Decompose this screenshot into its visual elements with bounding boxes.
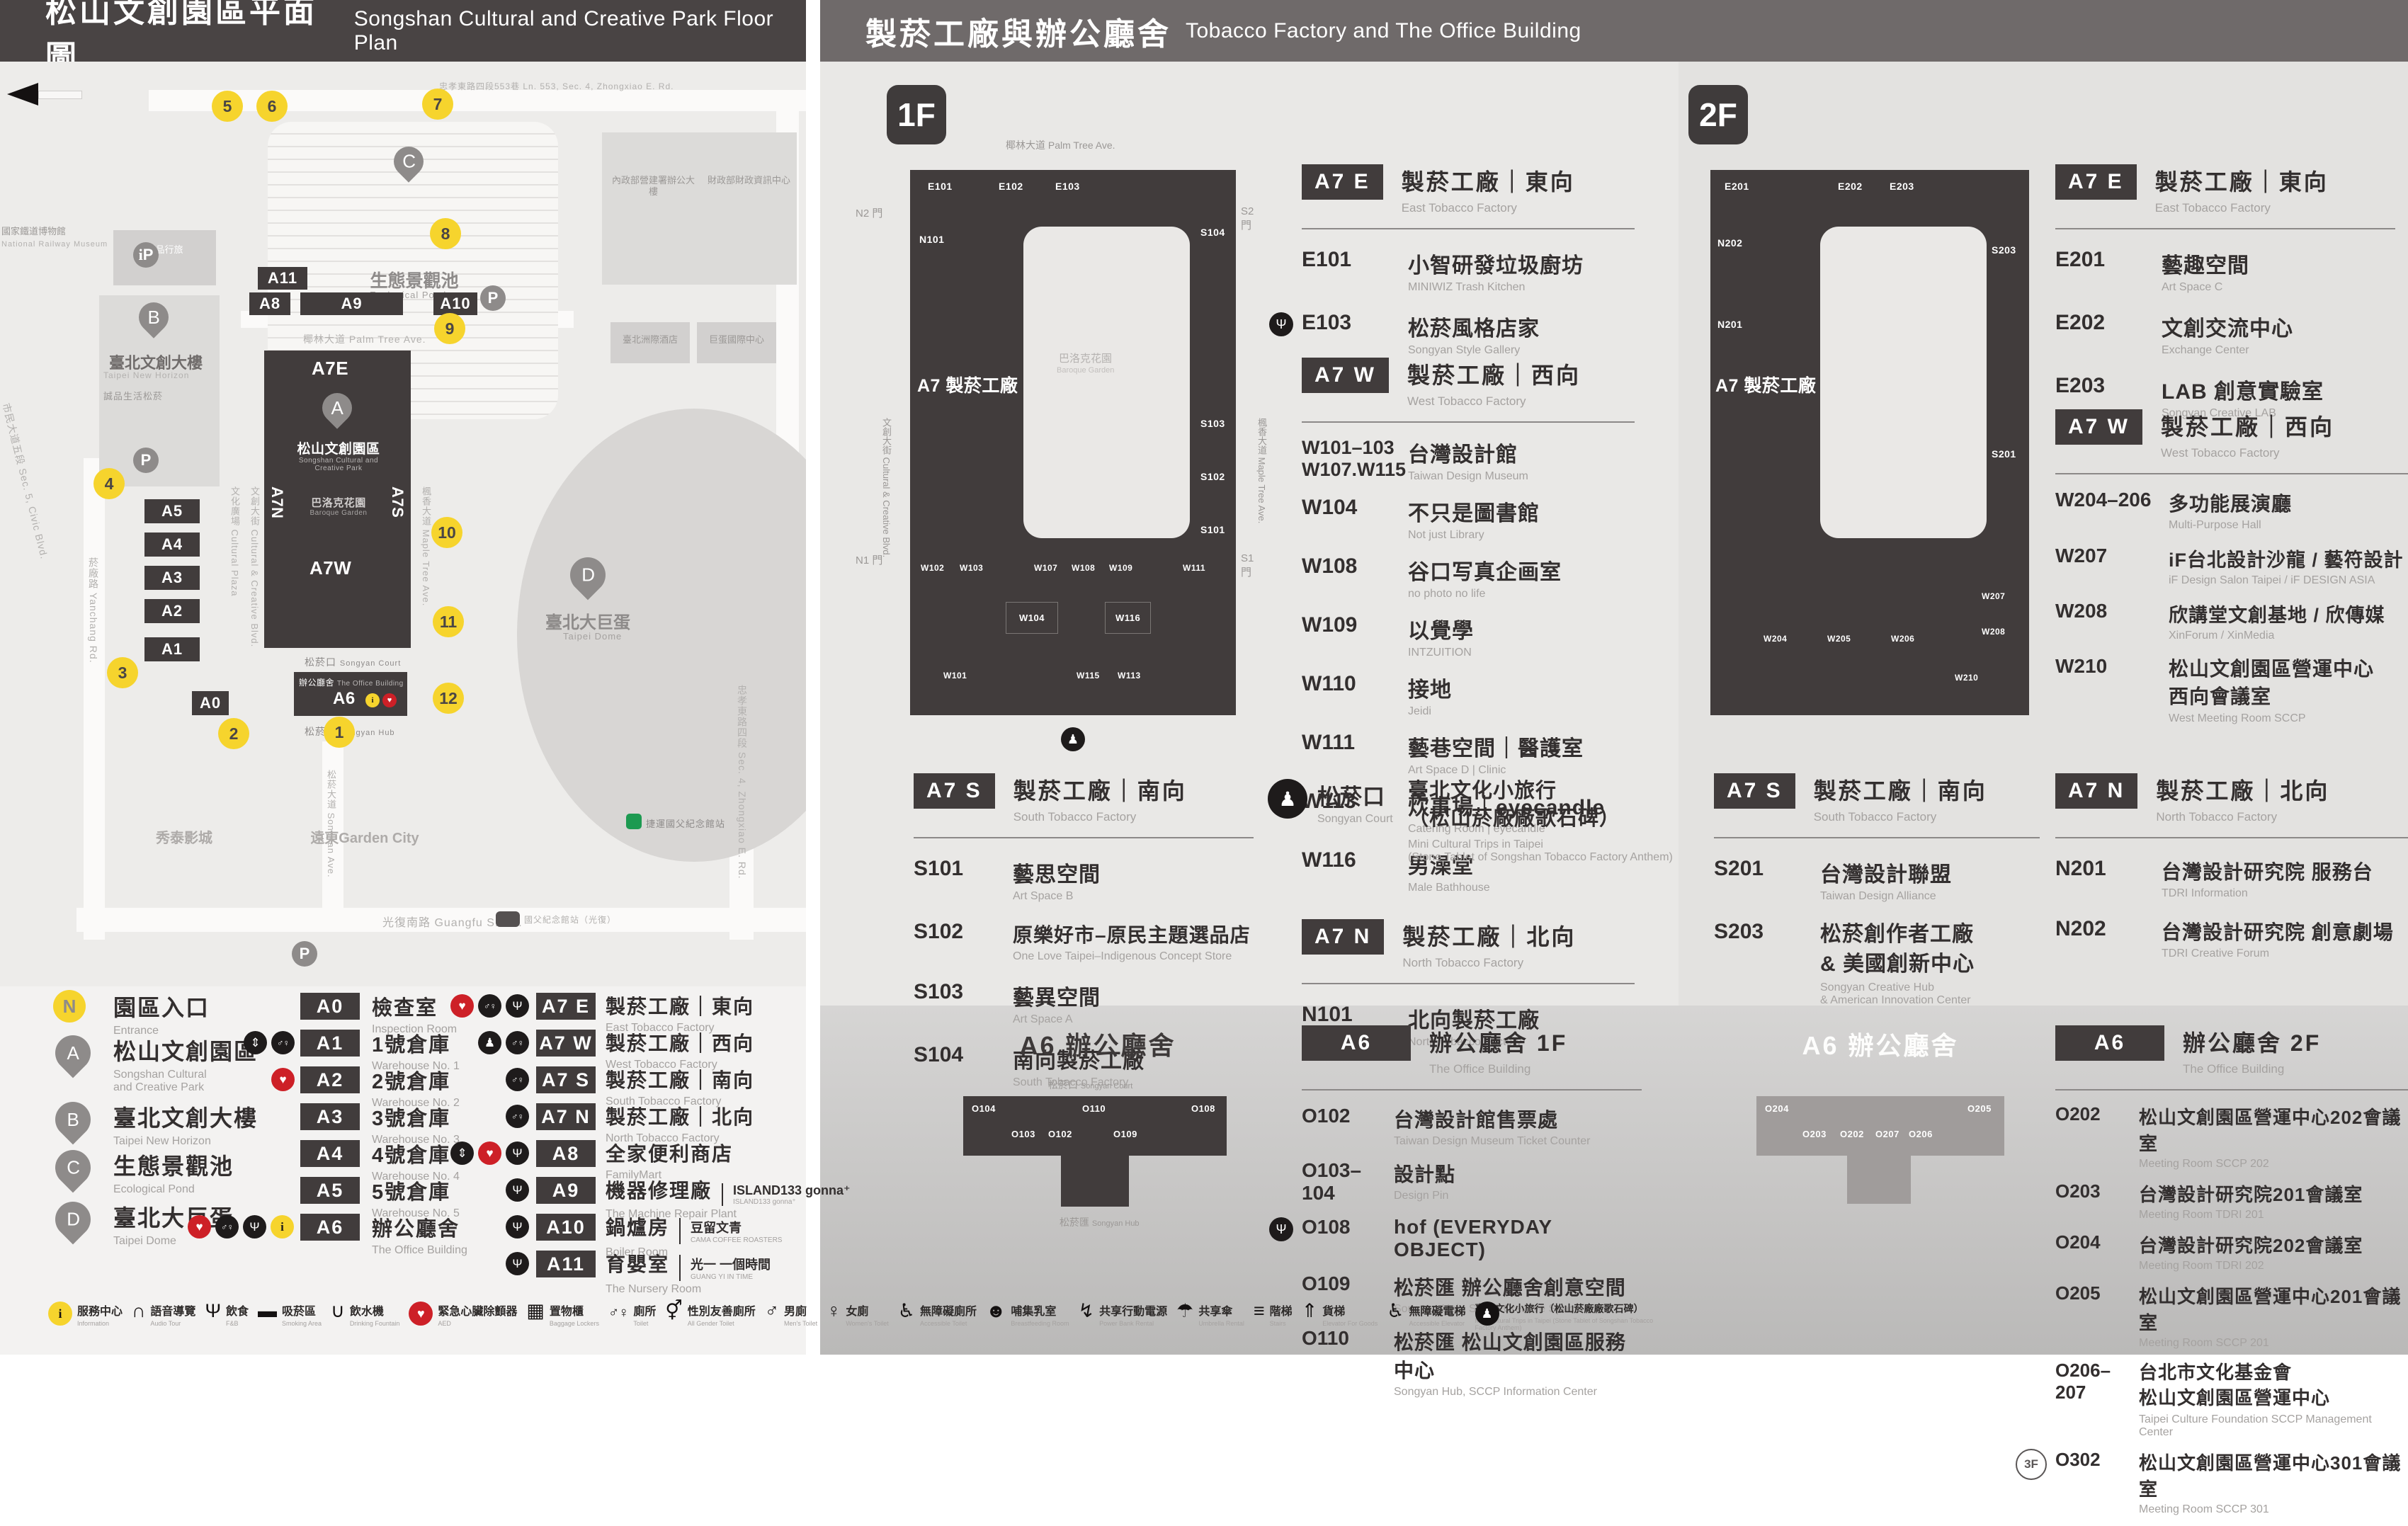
plan-street-ccblvd: 文創大街 Cultural & Creative Blvd.	[880, 418, 893, 557]
room-w101: W101	[943, 671, 967, 681]
facility-item: 廁所Toilet	[608, 1302, 656, 1327]
zone-badge: A7 W	[1302, 358, 1389, 393]
room-name-zh: 松菸匯 松山文創園區服務中心	[1394, 1327, 1642, 1384]
room-o103: O103	[1011, 1129, 1035, 1139]
info-icon	[271, 1215, 294, 1239]
section-title-en: The Office Building	[1429, 1062, 1567, 1076]
zone-sub-brand-en: CAMA COFFEE ROASTERS	[691, 1236, 782, 1244]
legend-icons-a7n	[499, 1105, 529, 1128]
room-code: W101–103 W107.W115	[1302, 437, 1408, 483]
zone-sub-brand: 光一 一個時間	[691, 1255, 771, 1273]
facility-zh: 緊急心臟除顫器	[438, 1302, 517, 1319]
section-title-en: South Tobacco Factory	[1814, 810, 1987, 824]
baroque-garden-label-zh: 巴洛克花園	[1059, 351, 1112, 365]
elevator-icon	[244, 1031, 267, 1054]
room-name-en: Not just Library	[1408, 529, 1540, 542]
entrance-marker-2: 2	[218, 718, 249, 749]
section-title-zh: 辦公廳舍 2F	[2183, 1025, 2321, 1058]
room-w115: W115	[1077, 671, 1100, 681]
a6-2f-plan-title: A6 辦公廳舍	[1756, 1025, 2004, 1062]
facility-en: Breastfeeding Room	[1011, 1320, 1069, 1327]
zone-label-zh: 1號倉庫	[372, 1028, 460, 1058]
room-name-zh: 台灣設計研究院 創意劇場	[2162, 917, 2394, 945]
facility-zh: 性別友善廁所	[688, 1302, 756, 1319]
stairs-icon	[1254, 1302, 1265, 1321]
section-1f-a6: A6 辦公廳舍 1FThe Office Building O102台灣設計館售…	[1302, 1025, 1642, 1410]
restaurant-icon	[243, 1215, 266, 1239]
room-name-zh: 藝思空間	[1013, 857, 1101, 888]
room-list-item: E103松菸風格店家Songyan Style Gallery	[1302, 311, 1635, 357]
entrance-marker-7: 7	[422, 89, 453, 120]
facility-en: Women's Toilet	[846, 1320, 888, 1327]
room-o204: O204	[1765, 1103, 1789, 1114]
dome-label-zh: 臺北大巨蛋	[524, 608, 652, 633]
room-o202: O202	[1840, 1129, 1864, 1139]
drinking-fountain-icon	[331, 1302, 345, 1321]
section-title-zh: 製菸工廠｜東向	[1402, 164, 1575, 197]
room-list-item: S203松菸創作者工廠 & 美國創新中心Songyan Creative Hub…	[1714, 920, 2040, 1007]
room-w103: W103	[960, 563, 983, 573]
facility-item: 性別友善廁所All Gender Toilet	[665, 1302, 755, 1327]
section-2f-a6: A6 辦公廳舍 2FThe Office Building O202松山文創園區…	[2055, 1025, 2408, 1526]
room-code: E201	[2055, 248, 2162, 294]
facility-item: 共享行動電源Power Bank Rental	[1078, 1302, 1167, 1327]
room-w111: W111	[1183, 563, 1205, 573]
compass-north-icon	[7, 83, 38, 106]
facility-en: Drinking Fountain	[350, 1320, 400, 1327]
entrance-marker-9: 9	[434, 313, 465, 344]
room-name-en: Art Space D | Clinic	[1408, 764, 1584, 777]
mini-trip-icon	[478, 1031, 501, 1054]
a7-building-label: A7 製菸工廠	[1715, 372, 1816, 397]
zone-badge: A7 W	[2055, 409, 2142, 445]
zone-label-en: The Nursery Room	[606, 1283, 771, 1296]
room-list-item: W111藝巷空間｜醫護室Art Space D | Clinic	[1302, 731, 1635, 777]
room-list-item: S103藝異空間Art Space A	[914, 980, 1254, 1026]
legend-tag-a8: A8	[536, 1140, 596, 1167]
entrance-marker-4: 4	[93, 468, 125, 499]
facility-en: Toilet	[633, 1320, 656, 1327]
room-name-zh: 台灣設計聯盟	[1820, 857, 1952, 888]
room-w205: W205	[1827, 634, 1851, 644]
room-w116: W116	[1105, 602, 1151, 634]
room-name-en: Art Space C	[2162, 281, 2249, 294]
zone-sub-brand-en: GUANG YI IN TIME	[691, 1273, 771, 1281]
room-name-en: Male Bathhouse	[1408, 882, 1490, 894]
park-label-zh: 松山文創園區	[282, 438, 395, 457]
park-label-en: Songshan Cultural and Creative Park	[282, 457, 395, 472]
room-name-en: One Love Taipei–Indigenous Concept Store	[1013, 950, 1251, 963]
audio-tour-icon	[132, 1302, 145, 1321]
facility-zh: 貨梯	[1322, 1302, 1378, 1319]
right-header: 製菸工廠與辦公廳舍 Tobacco Factory and The Office…	[820, 0, 2408, 62]
room-name-en: Meeting Room SCCP 201	[2139, 1337, 2408, 1350]
facility-en: Men's Toilet	[784, 1320, 817, 1327]
room-name-en: Taiwan Design Alliance	[1820, 890, 1952, 903]
food-icon	[205, 1302, 221, 1321]
room-code: W104	[1302, 496, 1408, 542]
songyan-court-title: 松菸口 Songyan Court	[1317, 779, 1393, 826]
bus-stop-label: 國父紀念館站（光復）	[524, 913, 616, 926]
section-title-en: North Tobacco Factory	[2156, 810, 2329, 824]
legend-tag-a7e: A7 E	[536, 993, 596, 1020]
legend-tag-a11: A11	[536, 1251, 596, 1277]
baroque-label-zh: 巴洛克花園	[289, 495, 388, 510]
a6-plan-title-text: A6 辦公廳舍	[963, 1025, 1232, 1062]
room-e101: E101	[928, 181, 953, 192]
facility-en: Audio Tour	[150, 1320, 195, 1327]
park-map: 內政部營建署辦公大樓 財政部財政資訊中心 臺北洲際酒店 巨蛋國際中心 誠品行旅 …	[0, 62, 806, 986]
floor2-plan: E201 E202 E203 N202 N201 S203 S201 A7 製菸…	[1700, 138, 2040, 761]
map-tag-a7e: A7E	[312, 358, 348, 380]
compass-tail	[38, 91, 82, 99]
facility-en: Elevator For Goods	[1322, 1320, 1378, 1327]
mini-trip-icon	[1268, 779, 1307, 819]
room-code: O205	[2055, 1282, 2139, 1350]
room-o108: O108	[1191, 1103, 1215, 1114]
zone-label-zh: 3號倉庫	[372, 1102, 460, 1132]
map-tag-a8: A8	[249, 292, 290, 315]
room-w206: W206	[1891, 634, 1914, 644]
legend-icons-a6	[181, 1215, 294, 1239]
floor-2f-badge: 2F	[1688, 85, 1748, 144]
legend-tag-a5: A5	[300, 1177, 360, 1204]
right-title-zh: 製菸工廠與辦公廳舍	[865, 8, 1171, 54]
section-title-zh: 製菸工廠｜北向	[1402, 919, 1576, 952]
restaurant-icon	[506, 1215, 529, 1239]
legend-pin-c-label: 生態景觀池 Ecological Pond	[113, 1149, 234, 1196]
room-e203: E203	[1890, 181, 1914, 192]
entrance-legend-badge: N	[53, 990, 86, 1023]
aed-icon	[382, 693, 397, 707]
section-title-en: The Office Building	[2183, 1062, 2321, 1076]
map-tag-a0: A0	[192, 691, 229, 715]
all-gender-toilet-icon	[665, 1302, 682, 1321]
room-code: N202	[2055, 917, 2162, 960]
room-s104: S104	[1200, 227, 1225, 238]
room-w207: W207	[1982, 591, 2005, 601]
gate-n1: N1 門	[856, 552, 882, 567]
room-w107: W107	[1034, 563, 1057, 573]
restaurant-icon	[506, 1178, 529, 1202]
map-tag-a7s: A7S	[388, 486, 407, 518]
zone-label-zh: 製菸工廠｜南向	[606, 1065, 754, 1093]
legend-tag-a7n: A7 N	[536, 1103, 596, 1130]
room-list-item: O205松山文創園區營運中心201會議室Meeting Room SCCP 20…	[2055, 1282, 2408, 1350]
room-name-en: Design Pin	[1394, 1190, 1455, 1202]
room-name-zh: LAB 創意實驗室	[2162, 374, 2324, 405]
facility-zh: 服務中心	[77, 1302, 123, 1319]
section-title-zh: 製菸工廠｜南向	[1013, 773, 1187, 806]
zone-badge: A7 N	[1302, 919, 1384, 955]
facility-item: 階梯Stairs	[1254, 1302, 1293, 1327]
room-name-en: iF Design Salon Taipei / iF DESIGN ASIA	[2169, 574, 2404, 587]
legend-icons-a10	[499, 1215, 529, 1239]
toilet-icon	[506, 1068, 529, 1091]
room-name-zh: hof (EVERYDAY OBJECT)	[1394, 1216, 1642, 1261]
a7-building-label: A7 製菸工廠	[917, 372, 1018, 397]
zone-badge: A7 E	[2055, 164, 2137, 200]
room-code: W210	[2055, 655, 2169, 725]
parking-icon: P	[133, 448, 159, 473]
section-title-en: South Tobacco Factory	[1013, 810, 1187, 824]
facility-item: 服務中心Information	[48, 1302, 123, 1327]
legend-icons-a8	[443, 1141, 529, 1165]
room-code: S102	[914, 920, 1013, 963]
songyan-court-label: 松菸口 Songyan Court	[305, 655, 401, 669]
accessible-elevator-icon	[1387, 1302, 1404, 1321]
room-name-en: Meeting Room SCCP 202	[2139, 1158, 2408, 1171]
room-name-zh: 松山文創園區營運中心301會議室	[2139, 1449, 2408, 1501]
street-label-cultural-plaza: 文化廣場 Cultural Plaza	[228, 486, 242, 597]
room-name-en: Meeting Room TDRI 202	[2139, 1260, 2363, 1272]
room-w102: W102	[921, 563, 944, 573]
facility-item: 男廁Men's Toilet	[765, 1302, 817, 1327]
dome-intl-label: 巨蛋國際中心	[700, 334, 773, 346]
pin-label-zh: 臺北文創大樓	[113, 1100, 258, 1133]
floor-1f-badge: 1F	[887, 85, 946, 144]
room-name-zh: 原樂好市–原民主題選品店	[1013, 920, 1251, 948]
room-o104: O104	[972, 1103, 996, 1114]
room-name-zh: 接地	[1408, 672, 1452, 703]
zone-label-en: The Office Building	[372, 1244, 467, 1257]
room-code: S203	[1714, 920, 1820, 1007]
toilet-icon	[271, 1031, 295, 1054]
eslite-hotel-label: 誠品行旅	[117, 244, 212, 256]
facility-en: Baggage Lockers	[550, 1320, 599, 1327]
section-title-zh: 製菸工廠｜北向	[2156, 773, 2329, 806]
facility-zh: 無障礙電梯	[1409, 1302, 1466, 1319]
showtime-label: 秀泰影城	[127, 826, 241, 847]
metro-icon	[626, 814, 642, 829]
dome-label-en: Taipei Dome	[563, 631, 622, 642]
room-code: W110	[1302, 672, 1408, 718]
legend-tag-a7w: A7 W	[536, 1030, 596, 1057]
facility-item: 女廁Women's Toilet	[827, 1302, 889, 1327]
map-tag-a7n: A7N	[268, 486, 286, 519]
street-label-lane553: 忠孝東路四段553巷 Ln. 553, Sec. 4, Zhongxiao E.…	[439, 80, 674, 92]
facility-zh: 共享行動電源	[1099, 1302, 1167, 1319]
room-name-en: Taiwan Design Museum Ticket Counter	[1394, 1135, 1590, 1148]
a6-plan-court-label: 松菸口 Songyan Court	[1048, 1078, 1132, 1092]
room-code: W109	[1302, 613, 1408, 659]
room-list-item: O202松山文創園區營運中心202會議室Meeting Room SCCP 20…	[2055, 1103, 2408, 1171]
a7-2f-court	[1820, 227, 1987, 538]
room-name-zh: 藝趣空間	[2162, 248, 2249, 279]
room-code: O102	[1302, 1105, 1394, 1148]
room-name-zh: 台灣設計研究院202會議室	[2139, 1231, 2363, 1258]
room-e103: E103	[1055, 181, 1080, 192]
map-tag-a6: A6	[333, 689, 356, 709]
facility-en: Umbrella Rental	[1198, 1320, 1244, 1327]
room-name-en: TDRI Information	[2162, 887, 2373, 900]
zone-sub-brand: 豆留文青	[691, 1218, 782, 1236]
legend-tag-a7s: A7 S	[536, 1066, 596, 1093]
room-name-en: Songyan Style Gallery	[1408, 344, 1540, 357]
room-name-zh: 台灣設計研究院201會議室	[2139, 1180, 2363, 1207]
room-name-zh: 台灣設計館售票處	[1394, 1105, 1590, 1133]
facility-zh: 臺北文化小旅行（松山菸廠廠歌石碑）	[1475, 1302, 1659, 1316]
womens-toilet-icon	[827, 1302, 841, 1321]
facility-item: 貨梯Elevator For Goods	[1302, 1302, 1378, 1327]
room-name-zh: 台灣設計研究院 服務台	[2162, 857, 2373, 885]
floor1-plan: 椰林大道 Palm Tree Ave. E101 E102 E103 N2 門 …	[899, 138, 1246, 761]
room-name-zh: 以覺學	[1408, 613, 1474, 644]
plan-street-palm: 椰林大道 Palm Tree Ave.	[1006, 138, 1115, 152]
room-s103: S103	[1200, 418, 1225, 429]
railway-museum-label: 國家鐵道博物館	[1, 226, 108, 237]
mrt-station-label: 捷運國父紀念館站	[646, 816, 725, 830]
facility-item: 置物櫃Baggage Lockers	[526, 1302, 599, 1327]
room-code: W111	[1302, 731, 1408, 777]
room-name-en: TDRI Creative Forum	[2162, 947, 2394, 960]
room-name-zh: 松菸風格店家	[1408, 311, 1540, 342]
facility-en: Power Bank Rental	[1099, 1320, 1167, 1327]
zone-badge: A6	[1302, 1025, 1411, 1061]
umbrella-icon	[1176, 1302, 1193, 1321]
hotel-icc-label: 臺北洲際酒店	[613, 334, 687, 346]
zone-sub-brand: ISLAND133 gonna⁺	[733, 1183, 851, 1198]
room-code: E103	[1302, 311, 1408, 357]
room-s203: S203	[1992, 244, 2016, 256]
section-title-zh: 製菸工廠｜西向	[1407, 358, 1581, 390]
office-building-label: 辦公廳舍 The Office Building	[299, 676, 404, 688]
room-o110: O110	[1082, 1103, 1106, 1114]
toilet-icon	[478, 994, 501, 1018]
facility-en: F&B	[226, 1320, 249, 1327]
aed-icon	[188, 1215, 211, 1239]
room-name-zh: 小智研發垃圾廚坊	[1408, 248, 1584, 279]
road-lane553	[149, 90, 806, 111]
pin-label-en: Ecological Pond	[113, 1183, 234, 1196]
songyan-court-zh: 松菸口	[1317, 779, 1393, 811]
railway-museum-label-en: National Railway Museum	[1, 240, 108, 249]
room-name-en: Taipei Culture Foundation SCCP Managemen…	[2139, 1413, 2408, 1439]
facility-en: All Gender Toilet	[688, 1320, 756, 1327]
room-code: E101	[1302, 248, 1408, 294]
section-title-zh: 製菸工廠｜東向	[2155, 164, 2329, 197]
left-header: 松山文創園區平面圖 Songshan Cultural and Creative…	[0, 0, 806, 62]
facility-zh: 飲水機	[350, 1302, 400, 1319]
baroque-garden-court	[1023, 227, 1190, 538]
room-list-item: S102原樂好市–原民主題選品店One Love Taipei–Indigeno…	[914, 920, 1254, 963]
room-list-item: S101藝思空間Art Space B	[914, 857, 1254, 903]
aed-icon	[450, 994, 474, 1018]
aed-icon	[478, 1141, 501, 1165]
entrance-label-zh: 園區入口	[113, 990, 210, 1023]
facility-item: 共享傘Umbrella Rental	[1176, 1302, 1244, 1327]
facility-zh: 共享傘	[1198, 1302, 1244, 1319]
eslite-hotel-block	[113, 230, 216, 285]
room-list-item: 3FO302松山文創園區營運中心301會議室Meeting Room SCCP …	[2055, 1449, 2408, 1516]
section-title-zh: 製菸工廠｜西向	[2161, 409, 2334, 442]
facility-legend-strip: 服務中心Information 語音導覽Audio Tour 飲食F&B 吸菸區…	[48, 1302, 1380, 1331]
street-label-songyan-ave: 松菸大道 Songyan Ave.	[324, 770, 338, 878]
pin-label-en: Taipei New Horizon	[113, 1135, 258, 1148]
facility-en: Smoking Area	[282, 1320, 322, 1327]
legend-pin-b-label: 臺北文創大樓 Taipei New Horizon	[113, 1100, 258, 1148]
pond-label-zh: 生態景觀池	[351, 267, 478, 292]
room-s101: S101	[1200, 524, 1225, 535]
facility-item: 語音導覽Audio Tour	[132, 1302, 195, 1327]
legend-tag-a6: A6	[300, 1214, 360, 1241]
room-list-item: O103–104設計點Design Pin	[1302, 1159, 1642, 1205]
map-tag-a3: A3	[144, 566, 200, 590]
facility-item: 飲食F&B	[205, 1302, 249, 1327]
legend-icons-a9	[499, 1178, 529, 1202]
room-name-zh: 松山文創園區營運中心202會議室	[2139, 1103, 2408, 1156]
room-name-zh: 松山文創園區營運中心201會議室	[2139, 1282, 2408, 1335]
facility-zh: 女廁	[846, 1302, 888, 1319]
facility-en: AED	[438, 1320, 517, 1327]
legend-tag-a0: A0	[300, 993, 360, 1020]
zone-badge: A7 E	[1302, 164, 1383, 200]
room-s102: S102	[1200, 471, 1225, 482]
legend-icons-a2	[265, 1068, 295, 1091]
accessible-toilet-icon	[898, 1302, 915, 1321]
zone-label-zh: 製菸工廠｜北向	[606, 1102, 754, 1130]
map-tag-a11: A11	[258, 267, 307, 290]
room-name-en: Art Space A	[1013, 1013, 1101, 1026]
room-name-en: Taiwan Design Museum	[1408, 470, 1528, 483]
legend-icons-a1	[234, 1031, 295, 1054]
pin-label-zh: 生態景觀池	[113, 1149, 234, 1181]
room-o205: O205	[1967, 1103, 1992, 1114]
room-list-item: W208欣講堂文創基地 / 欣傳媒XinForum / XinMedia	[2055, 600, 2408, 642]
facility-item: 哺集乳室Breastfeeding Room	[986, 1302, 1069, 1327]
info-icon	[365, 693, 380, 707]
room-o109: O109	[1113, 1129, 1137, 1139]
room-name-zh: iF台北設計沙龍 / 藝符設計	[2169, 545, 2404, 572]
legend-icons-a7e	[443, 994, 529, 1018]
room-list-item: W101–103 W107.W115台灣設計館Taiwan Design Mus…	[1302, 437, 1635, 483]
a6-1f-footprint-stub	[1061, 1156, 1129, 1207]
room-code: O103–104	[1302, 1159, 1394, 1205]
room-list-item: O110松菸匯 松山文創園區服務中心Songyan Hub, SCCP Info…	[1302, 1327, 1642, 1399]
baroque-garden-label-en: Baroque Garden	[1057, 366, 1114, 375]
room-code: W204–206	[2055, 489, 2169, 532]
street-label-cc-blvd: 文創大街 Cultural & Creative Blvd.	[248, 486, 261, 647]
facility-zh: 階梯	[1270, 1302, 1293, 1319]
room-code: W208	[2055, 600, 2169, 642]
parking-icon: P	[292, 941, 317, 967]
locker-icon	[526, 1302, 545, 1321]
room-name-en: Jeidi	[1408, 705, 1452, 718]
street-label-civic: 市民大道五段 Sec. 5, Civic Blvd.	[0, 402, 52, 561]
zone-label-zh: 全家便利商店	[606, 1139, 733, 1167]
smoking-area-icon	[258, 1302, 277, 1321]
legend-tag-a4: A4	[300, 1140, 360, 1167]
entrance-marker-6: 6	[256, 91, 288, 122]
room-name-en: MINIWIZ Trash Kitchen	[1408, 281, 1584, 294]
map-tag-a7w: A7W	[309, 557, 351, 579]
map-tag-a1: A1	[144, 637, 200, 661]
room-code: W207	[2055, 545, 2169, 587]
room-n201: N201	[1717, 319, 1742, 330]
road-yanchang	[84, 458, 105, 940]
room-n101: N101	[919, 234, 944, 245]
pin-label-en: Songshan Cultural and Creative Park	[113, 1069, 258, 1094]
section-title-zh: 製菸工廠｜南向	[1814, 773, 1987, 806]
room-name-zh: 松菸創作者工廠 & 美國創新中心	[1820, 920, 1975, 979]
zone-badge: A7 S	[1714, 773, 1795, 809]
facility-zh: 無障礙廁所	[920, 1302, 977, 1319]
room-code: O202	[2055, 1103, 2139, 1171]
facility-item: 吸菸區Smoking Area	[258, 1302, 322, 1327]
room-list-item: E101小智研發垃圾廚坊MINIWIZ Trash Kitchen	[1302, 248, 1635, 294]
songyan-court-en: Songyan Court	[1317, 813, 1393, 826]
section-1f-a7e: A7 E 製菸工廠｜東向East Tobacco Factory E101小智研…	[1302, 164, 1635, 374]
